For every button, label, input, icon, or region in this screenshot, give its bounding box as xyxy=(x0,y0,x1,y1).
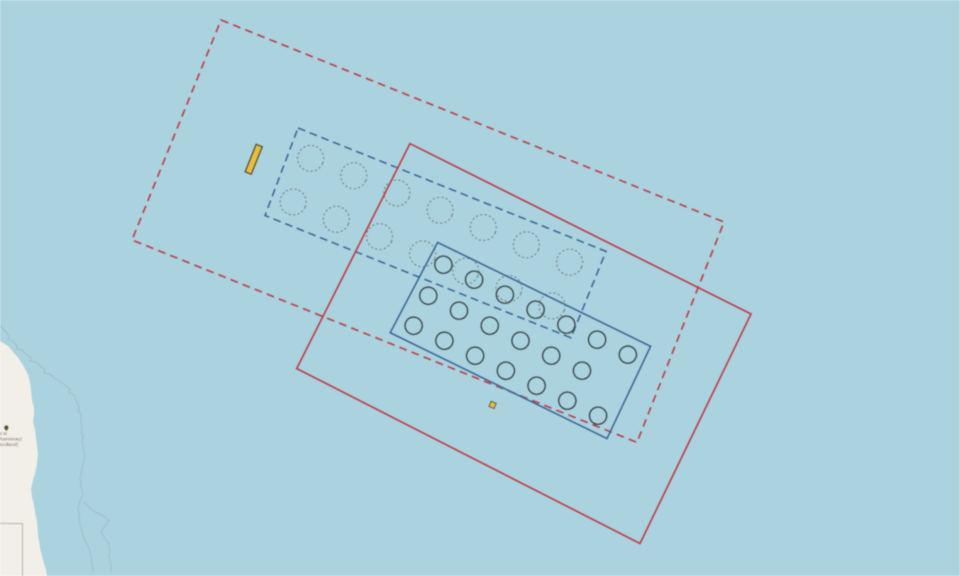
svg-text:(Thamterøy): (Thamterøy) xyxy=(0,437,22,443)
svg-text:(Nordland): (Nordland) xyxy=(0,442,19,448)
svg-text:rd st: rd st xyxy=(0,431,7,437)
